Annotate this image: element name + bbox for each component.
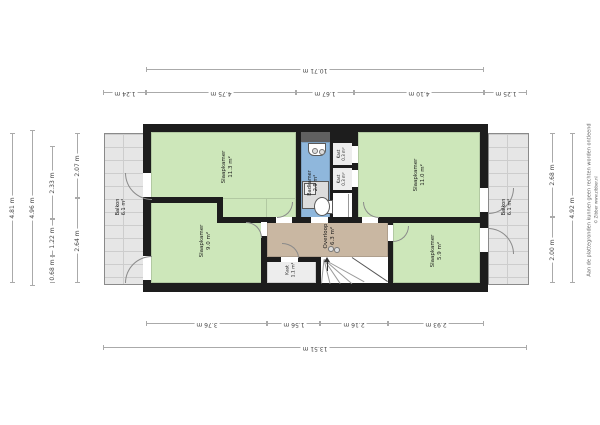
dim-label: 10.71 m [301,67,330,73]
dim-top-seg-1: 1.24 m [103,92,146,93]
dim-top-total: 10.71 m [146,69,484,70]
dim-bottom-seg-2: 1.56 m [267,323,320,324]
wall-bed113-bed90 [151,197,223,203]
room-area: 11.0 m² [420,159,427,192]
door-gap-bathroom [311,217,328,223]
dim-right-total: 4.92 m [572,133,573,283]
dim-top-seg-4: 4.10 m [354,92,484,93]
dim-label: 1.22 m [50,225,56,250]
door-gap-balcony-right-2 [480,228,488,252]
disclaimer-line-2: © Zibber www.zibber.nl [594,123,600,276]
dim-label: 4.75 m [208,90,233,96]
dim-left-inner-1: 2.07 m [77,133,78,198]
room-label-bedroom-11-0: Slaapkamer 11.0 m² [413,159,427,192]
door-leaf-line [348,194,349,217]
room-label-closet-03-a: Kast 0.3 m² [337,147,347,160]
door-gap-closet03a [352,146,358,163]
disclaimer: Aan de plattegronden kunnen geen rechten… [587,123,600,276]
room-name: Slaapkamer [413,159,420,192]
dim-label: 1.24 m [112,90,137,96]
dim-left-seg-3: 0.68 m [52,256,53,283]
dim-label: 2.33 m [50,170,56,195]
room-name: Slaapkamer [221,151,228,184]
wall-central-horizontal [218,217,480,223]
room-name: Slaapkamer [430,235,437,268]
room-name: Overloop [323,224,330,249]
room-area: 0.3 m² [342,147,347,160]
dim-bottom-seg-3: 2.16 m [320,323,388,324]
dim-label: 4.92 m [570,195,576,220]
room-label-bathroom: Badkamer 2.9 m² [307,170,320,196]
room-label-closet-11: Kast 1.1 m² [285,263,296,278]
door-gap-balcony-right-1 [480,188,488,212]
room-area: 6.3 m² [330,224,337,249]
dim-label: 2.00 m [550,237,556,262]
wall-closet11-stairs [316,257,321,283]
dim-label: 1.25 m [493,90,518,96]
room-label-balcony-right: Balkon 6.1 m² [501,199,514,216]
dim-label: 0.68 m [50,257,56,282]
dim-label: 4.96 m [30,195,36,220]
room-area: 11.3 m² [228,151,235,184]
dim-top-seg-5: 1.25 m [484,92,527,93]
door-gap-closet03b [352,170,358,187]
tap-icon [312,148,318,154]
dim-left-inner-2: 2.64 m [77,198,78,283]
dim-top-seg-3: 1.67 m [296,92,354,93]
room-area: 5.9 m² [437,235,444,268]
dim-label: 1.67 m [312,90,337,96]
room-label-landing: Overloop 6.3 m² [323,224,337,249]
door-gap-bed110 [362,217,378,223]
room-area: 9.0 m² [206,225,213,258]
room-label-bedroom-11-3: Slaapkamer 11.3 m² [221,151,235,184]
dim-label: 4.81 m [10,195,16,220]
dim-label: 2.64 m [75,228,81,253]
room-area: 6.1 m² [507,199,513,216]
door-gap-bed90 [261,222,267,236]
stair-arrow-line [327,261,328,271]
room-name: Slaapkamer [199,225,206,258]
room-area: 0.3 m² [342,172,347,185]
dim-top-seg-2: 4.75 m [146,92,296,93]
dim-label: 2.16 m [341,321,366,327]
dim-right-inner-2: 2.00 m [552,217,553,283]
dim-left-seg-1: 2.33 m [52,146,53,219]
room-area: 2.9 m² [313,170,319,196]
dim-label: 2.93 m [423,321,448,327]
floorplan-canvas: 10.71 m 1.24 m 4.75 m 1.67 m 4.10 m 1.25… [0,0,600,425]
wall-bathroom-left [296,132,301,223]
room-label-bedroom-9-0: Slaapkamer 9.0 m² [199,225,213,258]
dim-left-outer: 4.81 m [12,133,13,283]
room-area: 6.1 m² [121,199,127,216]
bathroom-door-niche [333,193,352,218]
dim-label: 3.76 m [194,321,219,327]
dim-label: 2.68 m [550,162,556,187]
dim-right-inner-1: 2.68 m [552,133,553,217]
dim-label: 1.56 m [281,321,306,327]
room-label-closet-03-b: Kast 0.3 m² [337,172,347,185]
dim-left-seg-2: 1.22 m [52,219,53,256]
dim-label: 13.51 m [301,345,330,351]
stair-up-arrow-icon [324,257,330,262]
dim-left-total: 4.96 m [32,130,33,286]
dim-bottom-seg-4: 2.93 m [388,323,484,324]
tap-icon [319,149,325,155]
dim-label: 4.10 m [406,90,431,96]
dim-label: 2.07 m [75,153,81,178]
dim-bottom-seg-1: 3.76 m [146,323,267,324]
dim-bottom-total: 13.51 m [103,347,527,348]
room-label-balcony-left: Balkon 6.1 m² [115,199,128,216]
disclaimer-line-1: Aan de plattegronden kunnen geen rechten… [587,123,594,276]
room-label-bedroom-5-9: Slaapkamer 5.9 m² [430,235,444,268]
toilet-bowl-icon [314,197,330,216]
room-area: 1.1 m² [291,263,297,278]
